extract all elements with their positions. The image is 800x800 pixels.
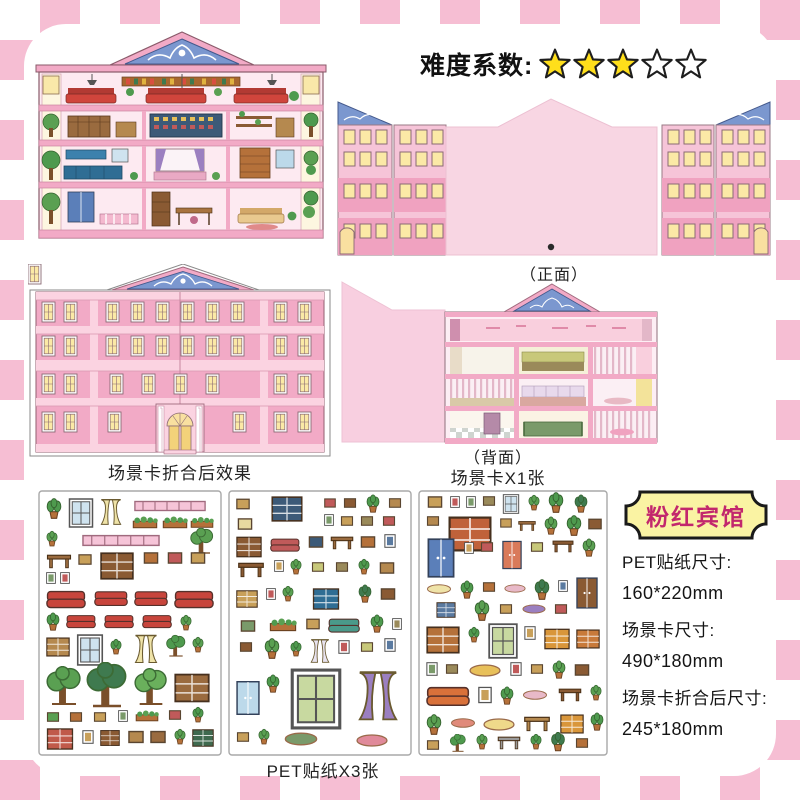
scene-card-count-caption: 场景卡X1张 (336, 464, 660, 489)
star-empty-icon (675, 48, 707, 80)
star-empty-icon (641, 48, 673, 80)
difficulty-rating: 难度系数: (420, 46, 707, 82)
spec-label: 场景卡折合后尺寸: (622, 684, 792, 709)
scene-card-folded-illustration (28, 264, 332, 458)
star-filled-icon (573, 48, 605, 80)
star-filled-icon (607, 48, 639, 80)
scene-card-front-illustration (336, 92, 772, 260)
spec-value: 160*220mm (622, 583, 792, 604)
spec-item: 场景卡尺寸:490*180mm (622, 616, 792, 672)
difficulty-stars (539, 48, 707, 80)
spec-value: 245*180mm (622, 719, 792, 740)
folded-effect-caption: 场景卡折合后效果 (28, 459, 332, 484)
star-filled-icon (539, 48, 571, 80)
spec-label: PET贴纸尺寸: (622, 548, 792, 573)
sticker-sheet-3 (418, 490, 608, 756)
spec-item: 场景卡折合后尺寸:245*180mm (622, 684, 792, 740)
dollhouse-interior-illustration (30, 30, 332, 240)
product-name: 粉红宾馆 (622, 488, 770, 542)
scene-card-back-illustration (336, 264, 660, 446)
spec-label: 场景卡尺寸: (622, 616, 792, 641)
spec-item: PET贴纸尺寸:160*220mm (622, 548, 792, 604)
product-poster: 难度系数: (0, 0, 800, 800)
spec-value: 490*180mm (622, 651, 792, 672)
sticker-sheet-1 (38, 490, 222, 756)
difficulty-label: 难度系数: (420, 46, 533, 82)
sticker-sheet-2 (228, 490, 412, 756)
spec-list: PET贴纸尺寸:160*220mm场景卡尺寸:490*180mm场景卡折合后尺寸… (622, 548, 792, 752)
sticker-count-caption: PET贴纸X3张 (38, 757, 608, 782)
product-name-plaque: 粉红宾馆 (622, 488, 770, 542)
